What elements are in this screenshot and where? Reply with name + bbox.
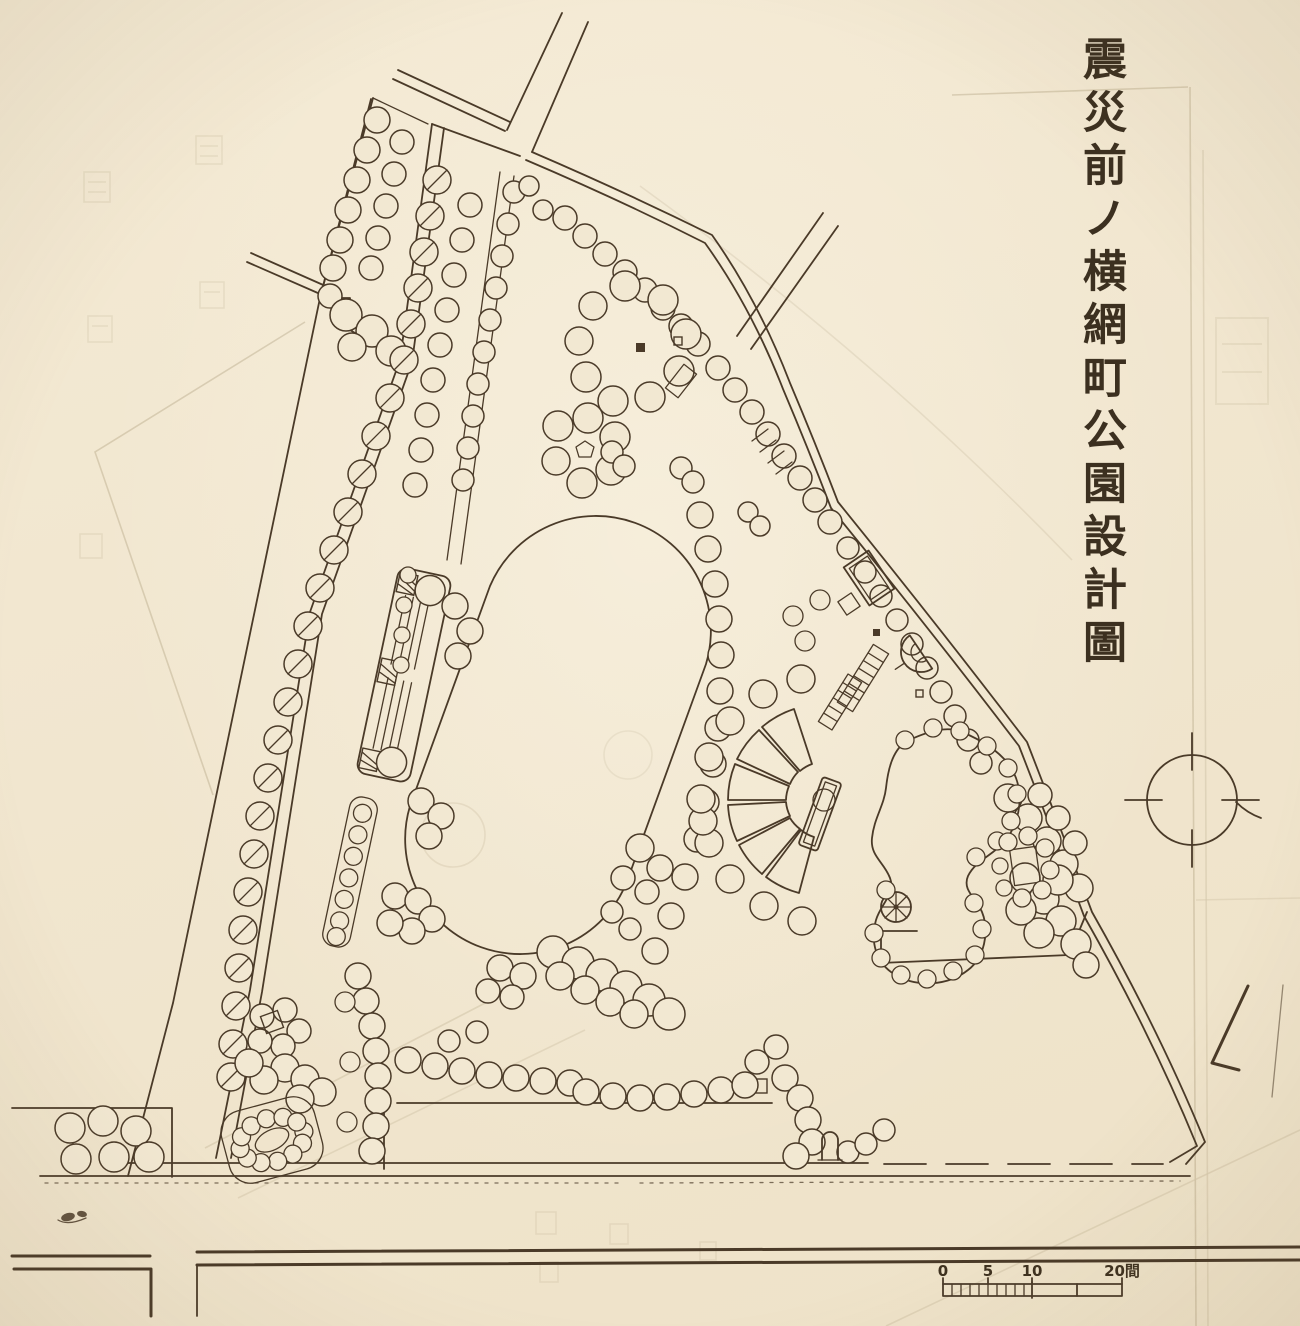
shrub-cloud-southwest	[235, 593, 483, 1164]
scale-bar: 0 5 10 20間	[938, 1262, 1140, 1298]
small-markers	[636, 337, 923, 697]
snowman-tree-pairs	[601, 441, 770, 536]
central-oval-lawn	[405, 516, 711, 954]
scale-label-0: 0	[938, 1262, 948, 1280]
rock-garden	[865, 719, 1059, 988]
outside-corner-bed	[12, 1106, 172, 1177]
scale-label-5: 5	[983, 1262, 993, 1280]
shrub-cloud-south-band	[395, 936, 895, 1169]
fan-flowerbed	[687, 665, 842, 935]
ink-smudge	[58, 1210, 87, 1222]
scanned-plan-page: 0 5 10 20間 震災前ノ横網町公園設計圖	[0, 0, 1300, 1326]
scale-label-10: 10	[1022, 1262, 1043, 1280]
stairs-path	[818, 644, 888, 730]
shrub-cloud-near-building	[783, 590, 830, 651]
plan-title: 震災前ノ横網町公園設計圖	[1072, 36, 1128, 672]
shrub-border-strip	[321, 795, 380, 950]
oval-flower-bed	[216, 1092, 328, 1188]
scale-label-20ken: 20間	[1104, 1262, 1140, 1280]
